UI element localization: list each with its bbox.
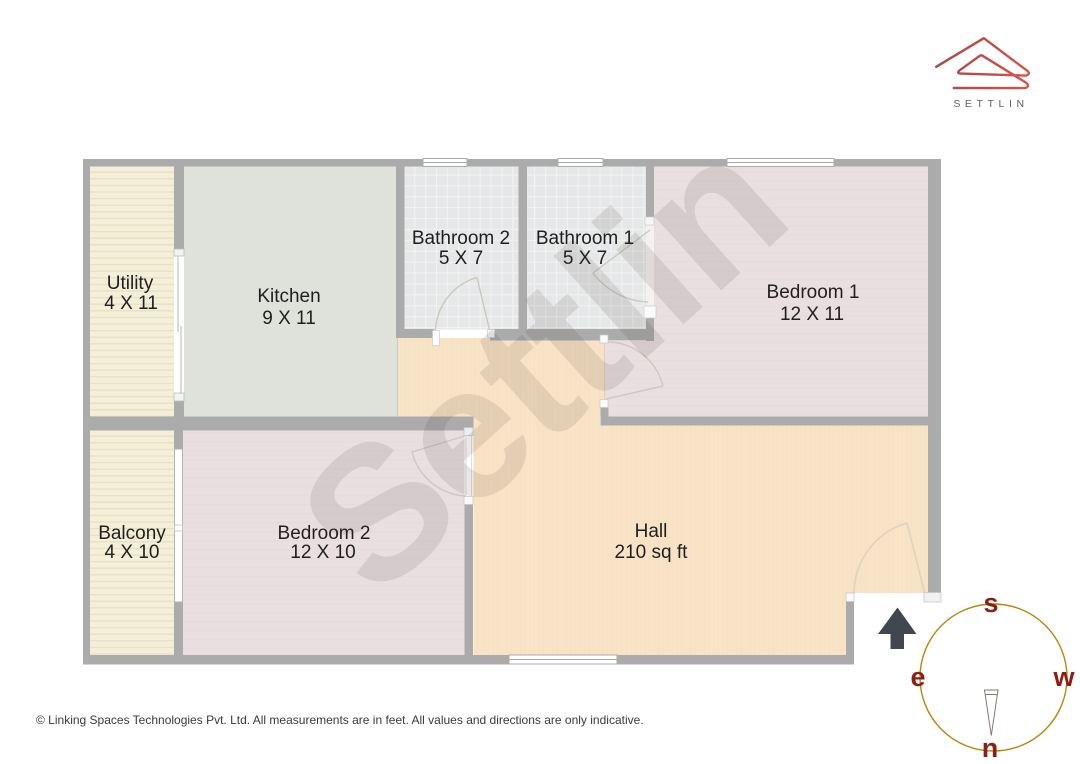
svg-text:Hall: Hall	[635, 521, 668, 542]
svg-text:Kitchen: Kitchen	[257, 286, 320, 307]
svg-text:4 X 10: 4 X 10	[105, 542, 160, 563]
svg-text:w: w	[1052, 662, 1075, 692]
svg-text:12 X 11: 12 X 11	[780, 304, 844, 325]
svg-text:4 X 11: 4 X 11	[104, 293, 158, 314]
svg-text:5 X 7: 5 X 7	[439, 248, 483, 269]
svg-text:9 X 11: 9 X 11	[262, 308, 316, 329]
svg-text:e: e	[910, 662, 925, 692]
svg-text:s: s	[983, 588, 998, 618]
svg-text:Bathroom 2: Bathroom 2	[412, 228, 510, 249]
svg-text:SETTLIN: SETTLIN	[953, 98, 1028, 110]
svg-text:© Linking Spaces Technologies: © Linking Spaces Technologies Pvt. Ltd. …	[36, 713, 644, 727]
svg-text:n: n	[982, 733, 999, 763]
svg-text:Balcony: Balcony	[98, 523, 166, 544]
svg-text:Utility: Utility	[107, 273, 154, 294]
svg-text:210 sq ft: 210 sq ft	[615, 542, 689, 563]
